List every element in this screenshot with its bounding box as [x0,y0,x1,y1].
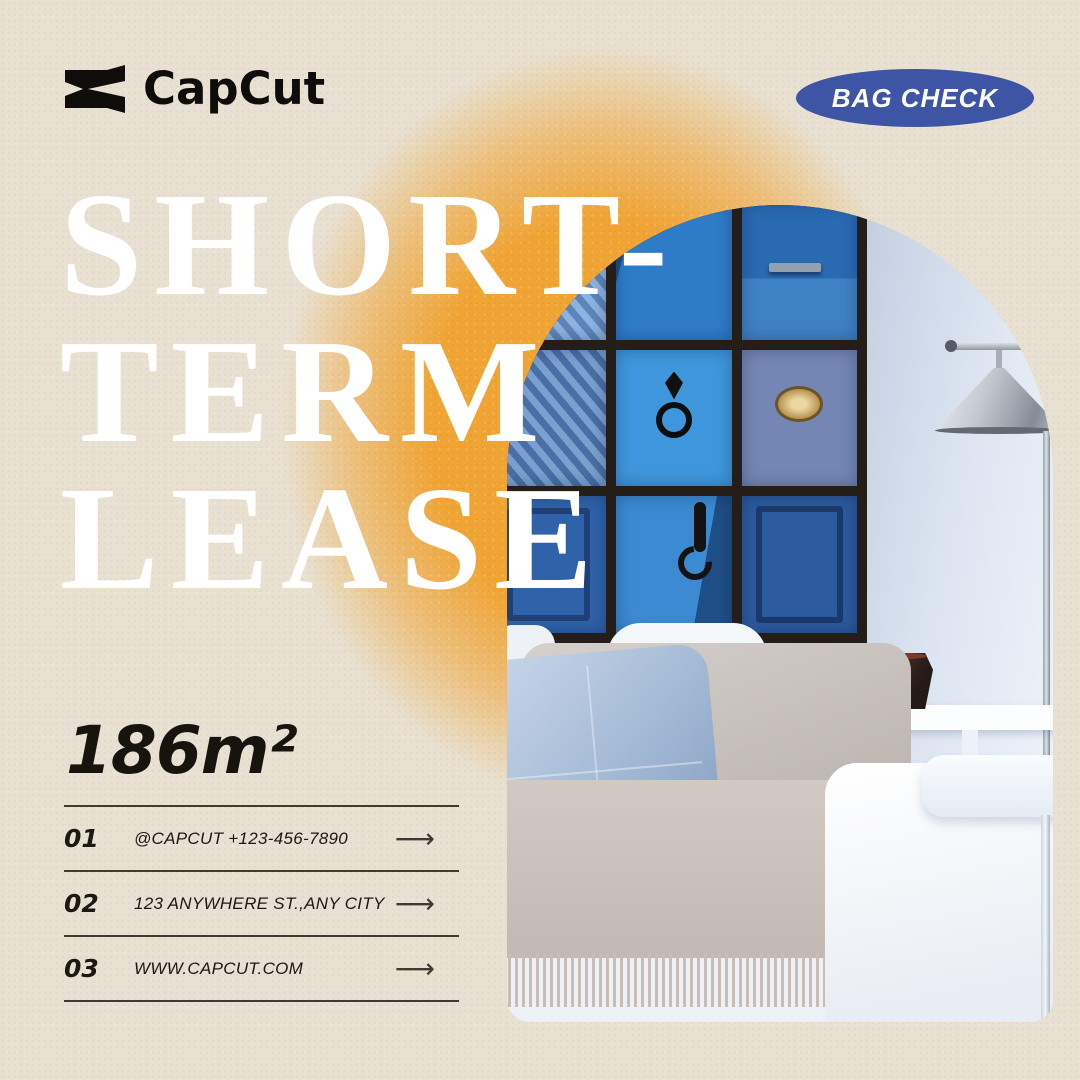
arrow-right-icon[interactable]: ⟶ [395,887,435,920]
side-table-pole [1041,815,1050,1022]
title-line-3: LEASE [60,466,680,613]
row-number: 03 [64,954,134,983]
badge-label: BAG CHECK [832,83,998,114]
row-number: 02 [64,889,134,918]
capcut-logo-icon [62,63,128,115]
arrow-right-icon[interactable]: ⟶ [395,822,435,855]
contact-row: 03 WWW.CAPCUT.COM ⟶ [64,937,459,1002]
arrow-right-icon[interactable]: ⟶ [395,952,435,985]
floor-lamp-arm [951,343,1053,350]
door-picture [742,350,857,487]
contact-list: 01 @CAPCUT +123-456-7890 ⟶ 02 123 ANYWHE… [64,805,459,1002]
contact-row: 02 123 ANYWHERE ST.,ANY CITY ⟶ [64,872,459,937]
contact-address: 123 ANYWHERE ST.,ANY CITY [134,894,395,914]
title-line-2: TERM [60,319,680,466]
floor-lamp-rim [935,427,1053,434]
floor-lamp-tip [945,340,957,352]
bag-check-badge[interactable]: BAG CHECK [796,69,1034,127]
door-picture [742,205,857,340]
contact-website: WWW.CAPCUT.COM [134,959,395,979]
door-picture [742,496,857,633]
brand-wordmark: CapCut [143,62,325,115]
title-line-1: SHORT- [60,172,680,319]
rounded-side-table [922,755,1053,817]
brand-lockup: CapCut [62,62,325,115]
main-title: SHORT- TERM LEASE [60,172,680,613]
row-number: 01 [64,824,134,853]
contact-row: 01 @CAPCUT +123-456-7890 ⟶ [64,807,459,872]
area-size-label: 186m² [66,712,296,789]
contact-handle-phone: @CAPCUT +123-456-7890 [134,829,395,849]
poster-canvas: CapCut BAG CHECK [0,0,1080,1080]
